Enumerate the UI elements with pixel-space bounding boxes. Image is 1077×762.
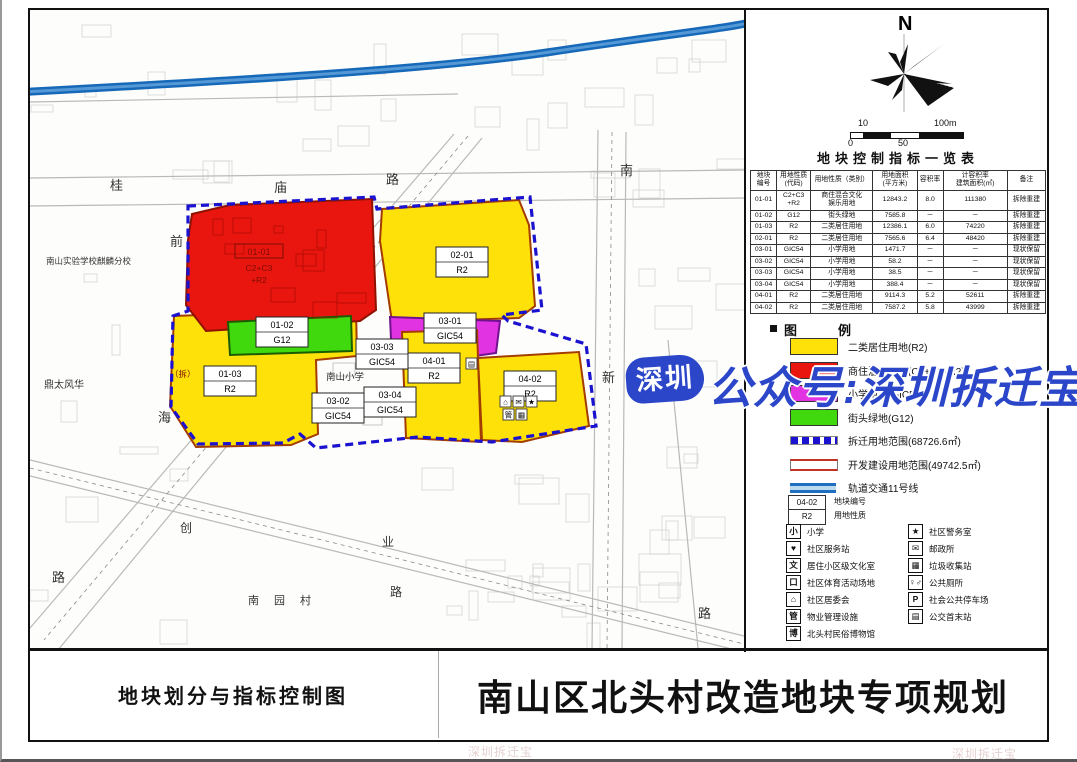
table-header: 地块 编号用地性质 (代码)用地性质（类别）用地面积 (平方米)容积率计容积率 … [751, 171, 1046, 191]
table-cell: － [917, 245, 943, 256]
table-cell: 拆除重建 [1007, 302, 1045, 313]
facility-icon: ⌂ [786, 592, 801, 607]
table-cell: 388.4 [873, 279, 917, 290]
table-row: 01-03R2二类居住用地12386.16.074220拆除重建 [751, 222, 1046, 233]
scale-tick-100m: 100m [934, 118, 957, 128]
facility-label: 邮政所 [929, 543, 955, 555]
parcel-04-01 [402, 330, 481, 442]
table-cell: G12 [777, 210, 811, 221]
table-cell: GIC54 [777, 256, 811, 267]
table-cell: 74220 [943, 222, 1007, 233]
legend-item-label: 开发建设用地范围(49742.5㎡) [848, 457, 981, 472]
table-cell: 拆除重建 [1007, 291, 1045, 302]
legend-item-label: 二类居住用地(R2) [848, 339, 927, 354]
svg-text:⌂: ⌂ [503, 398, 508, 407]
svg-text:01-01: 01-01 [247, 247, 270, 257]
parcel-label-01-03: 01-03R2 [204, 366, 256, 396]
table-cell: 拆除重建 [1007, 233, 1045, 244]
parcel-label-03-01: 03-01GIC54 [424, 313, 476, 343]
legend-bullet [770, 325, 777, 332]
parcel-label-01-02: 01-02G12 [256, 317, 308, 347]
table-cell: 01-02 [751, 210, 777, 221]
table-cell: 小学用地 [811, 268, 873, 279]
sample-parcel-code: 04-02 [789, 496, 825, 510]
facility-legend-row: ▤公交首末站 [908, 609, 1018, 625]
table-cell: 1471.7 [873, 245, 917, 256]
facility-icon: ♀♂ [908, 575, 923, 590]
north-label: N [898, 14, 912, 35]
facility-label: 社会公共停车场 [929, 594, 989, 606]
svg-text:03-01: 03-01 [438, 316, 461, 326]
table-cell: 二类居住用地 [811, 222, 873, 233]
facility-label: 社区居委会 [807, 594, 850, 606]
table-cell: 111380 [943, 190, 1007, 210]
table-cell: R2 [777, 233, 811, 244]
table-row: 03-03GIC54小学用地38.5－－现状保留 [751, 268, 1046, 279]
map-label: （拆） [170, 369, 196, 379]
legend-title: 图 例 [784, 320, 865, 339]
table-cell: 48420 [943, 233, 1007, 244]
table-row: 02-01R2二类居住用地7565.66.448420拆除重建 [751, 233, 1046, 244]
table-cell: 12843.2 [873, 190, 917, 210]
svg-text:R2: R2 [428, 371, 440, 381]
facility-legend-row: 文居住小区级文化室 [786, 558, 896, 574]
table-cell: 03-01 [751, 245, 777, 256]
project-title: 南山区北头村改造地块专项规划 [439, 651, 1047, 738]
parcel-label-03-04: 03-04GIC54 [364, 387, 416, 417]
facility-legend-row: P社会公共停车场 [908, 592, 1018, 608]
table-cell: 二类居住用地 [811, 233, 873, 244]
facility-icon: 小 [786, 524, 801, 539]
map-label: 南 [620, 163, 633, 178]
svg-text:G12: G12 [273, 335, 290, 345]
table-column-header: 备注 [1007, 171, 1045, 191]
table-cell: 二类居住用地 [811, 302, 873, 313]
table-row: 04-02R2二类居住用地7587.25.843999拆除重建 [751, 302, 1046, 313]
table-title: 地块控制指标一览表 [750, 148, 1046, 167]
table-cell: － [917, 279, 943, 290]
facility-legend-row: 管物业管理设施 [786, 609, 896, 625]
scale-tick-0: 0 [848, 138, 853, 148]
table-cell: 02-01 [751, 233, 777, 244]
facility-icon: 口 [786, 575, 801, 590]
facility-label: 社区体育活动场地 [807, 577, 875, 589]
table-cell: 7587.2 [873, 302, 917, 313]
map-label: 路 [386, 172, 399, 187]
table-row: 03-04GIC54小学用地388.4－－现状保留 [751, 279, 1046, 290]
table-cell: 现状保留 [1007, 268, 1045, 279]
table-cell: 7585.8 [873, 210, 917, 221]
table-column-header: 地块 编号 [751, 171, 777, 191]
map-label: 海 [158, 410, 171, 425]
table-cell: 9114.3 [873, 291, 917, 302]
facility-legend-row: 博北头村民俗博物馆 [786, 626, 896, 642]
panel-divider [744, 8, 746, 652]
map-label: 南山小学 [326, 371, 364, 383]
table-cell: 二类居住用地 [811, 291, 873, 302]
parcel-label-02-01: 02-01R2 [436, 247, 488, 277]
table-cell: 03-03 [751, 268, 777, 279]
table-cell: 拆除重建 [1007, 190, 1045, 210]
facility-label: 小学 [807, 526, 824, 538]
table-cell: － [943, 279, 1007, 290]
table-cell: － [917, 256, 943, 267]
facility-legend-row: ✉邮政所 [908, 541, 1018, 557]
facility-icon: ✉ [908, 541, 923, 556]
svg-text:管: 管 [505, 410, 513, 420]
table-cell: － [943, 256, 1007, 267]
watermark-faint-center: 深圳拆迁宝 [468, 743, 533, 760]
sample-parcel-label: 04-02 R2 [788, 495, 826, 525]
table-cell: GIC54 [777, 245, 811, 256]
table-row: 01-01C2+C3 +R2商住混合文化 娱乐用地12843.28.011138… [751, 190, 1046, 210]
legend-item-label: 街头绿地(G12) [848, 410, 914, 425]
table-cell: 04-02 [751, 302, 777, 313]
table-cell: C2+C3 +R2 [777, 190, 811, 210]
legend-swatch-fill [790, 409, 838, 426]
metro-line-11 [30, 22, 744, 92]
table-cell: 58.2 [873, 256, 917, 267]
map-label: 庙 [274, 180, 287, 195]
table-cell: － [943, 210, 1007, 221]
facility-legend-row: ⌂社区居委会 [786, 592, 896, 608]
svg-text:04-01: 04-01 [422, 356, 445, 366]
svg-text:GIC54: GIC54 [325, 411, 351, 421]
svg-text:★: ★ [528, 398, 535, 407]
table-cell: 5.8 [917, 302, 943, 313]
map-label: 村 [300, 593, 311, 607]
facility-legend-row: ♀♂公共厕所 [908, 575, 1018, 591]
svg-text:03-04: 03-04 [378, 390, 401, 400]
facility-icon: P [908, 592, 923, 607]
svg-text:▤: ▤ [468, 360, 475, 369]
table-cell: 03-04 [751, 279, 777, 290]
table-cell: 现状保留 [1007, 256, 1045, 267]
table-cell: 38.5 [873, 268, 917, 279]
watermark-faint-right: 深圳拆迁宝 [952, 745, 1017, 762]
table-cell: R2 [777, 222, 811, 233]
legend-label-sample: 04-02 R2 地块编号 用地性质 [788, 495, 968, 525]
svg-text:02-01: 02-01 [450, 250, 473, 260]
scale-tick-50: 50 [898, 138, 908, 148]
legend-item-label: 商住混合用地(C2+C3+R2) [848, 363, 965, 378]
sample-parcel-type: R2 [789, 510, 825, 523]
table-cell: GIC54 [777, 268, 811, 279]
facility-icon: 管 [786, 609, 801, 624]
table-cell: 03-02 [751, 256, 777, 267]
table-row: 03-01GIC54小学用地1471.7－－现状保留 [751, 245, 1046, 256]
table-cell: － [943, 268, 1007, 279]
legend-swatch-metro [790, 483, 836, 493]
facility-legend-row: ★社区警务室 [908, 524, 1018, 540]
map-label: 园 [274, 594, 285, 607]
table-cell: － [917, 210, 943, 221]
map-canvas: 02-01R201-02G1201-03R203-01GIC5403-03GIC… [30, 10, 744, 648]
map-label: 新 [602, 370, 615, 385]
svg-text:+R2: +R2 [251, 275, 267, 285]
facility-label: 居住小区级文化室 [807, 560, 875, 572]
map-label: 南 [248, 594, 259, 607]
facility-icon: 博 [786, 626, 801, 641]
table-cell: 街头绿地 [811, 210, 873, 221]
sample-note-code: 地块编号 [834, 496, 866, 507]
map-facility-icon: ▤ [466, 358, 477, 369]
scale-segment [863, 133, 891, 138]
svg-text:03-02: 03-02 [326, 396, 349, 406]
table-cell: 01-03 [751, 222, 777, 233]
facility-legend-row: 小小学 [786, 524, 896, 540]
table-cell: 6.4 [917, 233, 943, 244]
svg-text:GIC54: GIC54 [369, 357, 395, 367]
map-label: 业 [382, 535, 394, 549]
map-label: 鼎太风华 [44, 378, 84, 391]
indicator-table-block: 地块控制指标一览表 地块 编号用地性质 (代码)用地性质（类别）用地面积 (平方… [750, 148, 1046, 314]
table-cell: 12386.1 [873, 222, 917, 233]
table-cell: 现状保留 [1007, 279, 1045, 290]
table-cell: 6.0 [917, 222, 943, 233]
svg-text:▦: ▦ [518, 411, 525, 420]
svg-text:01-03: 01-03 [218, 369, 241, 379]
table-cell: R2 [777, 302, 811, 313]
legend-swatch-fill [790, 338, 838, 355]
scale-bar: 10 100m 0 50 [846, 118, 964, 146]
table-cell: 商住混合文化 娱乐用地 [811, 190, 873, 210]
table-cell: 现状保留 [1007, 245, 1045, 256]
map-label: 桂 [110, 178, 123, 193]
facility-label: 垃圾收集站 [929, 560, 972, 572]
parcel-label-03-03: 03-03GIC54 [356, 339, 408, 369]
facility-label: 物业管理设施 [807, 611, 858, 623]
facility-icon: 文 [786, 558, 801, 573]
table-column-header: 用地面积 (平方米) [873, 171, 917, 191]
facility-icon: ▦ [908, 558, 923, 573]
svg-text:03-03: 03-03 [370, 342, 393, 352]
facility-label: 社区警务室 [929, 526, 972, 538]
table-cell: 52611 [943, 291, 1007, 302]
map-facility-icon: ▦ [516, 409, 527, 420]
table-column-header: 用地性质 (代码) [777, 171, 811, 191]
table-cell: － [917, 268, 943, 279]
facility-label: 北头村民俗博物馆 [807, 628, 875, 640]
map-facility-icon: 管 [503, 409, 514, 420]
table-cell: 小学用地 [811, 256, 873, 267]
svg-text:01-02: 01-02 [270, 320, 293, 330]
table-row: 04-01R2二类居住用地9114.35.252611拆除重建 [751, 291, 1046, 302]
facility-legend-row: 口社区体育活动场地 [786, 575, 896, 591]
svg-text:GIC54: GIC54 [377, 405, 403, 415]
table-cell: 小学用地 [811, 245, 873, 256]
planning-map: 02-01R201-02G1201-03R203-01GIC5403-03GIC… [30, 10, 744, 648]
map-facility-icon: ⌂ [500, 396, 511, 407]
svg-text:04-02: 04-02 [518, 374, 541, 384]
table-column-header: 用地性质（类别） [811, 171, 873, 191]
indicator-table: 地块 编号用地性质 (代码)用地性质（类别）用地面积 (平方米)容积率计容积率 … [750, 170, 1046, 314]
metro-line-11-core [30, 22, 744, 92]
map-label: 南山实验学校麒麟分校 [46, 256, 132, 266]
table-cell: 01-01 [751, 190, 777, 210]
parcel-label-04-01: 04-01R2 [408, 353, 460, 383]
table-cell: 拆除重建 [1007, 222, 1045, 233]
map-label: 路 [698, 606, 711, 621]
sample-note-type: 用地性质 [834, 510, 866, 521]
facility-icon: ★ [908, 524, 923, 539]
svg-text:GIC54: GIC54 [437, 331, 463, 341]
legend-swatch-dashed [790, 436, 838, 445]
drawing-title: 地块划分与指标控制图 [28, 651, 438, 738]
compass-rose: N [848, 14, 960, 116]
table-cell: － [943, 245, 1007, 256]
map-label: 路 [390, 584, 402, 599]
facility-label: 社区服务站 [807, 543, 850, 555]
facility-icon: ▤ [908, 609, 923, 624]
table-row: 03-02GIC54小学用地58.2－－现状保留 [751, 256, 1046, 267]
table-cell: 7565.6 [873, 233, 917, 244]
table-column-header: 容积率 [917, 171, 943, 191]
map-label: 前 [170, 234, 183, 249]
facility-label: 公交首末站 [929, 611, 972, 623]
legend-item-label: 拆迁用地范围(68726.6㎡) [848, 433, 961, 448]
svg-text:R2: R2 [224, 384, 236, 394]
table-row: 01-02G12街头绿地7585.8－－拆除重建 [751, 210, 1046, 221]
legend-item-label: 小学用地(GIC54) [848, 386, 924, 401]
table-cell: GIC54 [777, 279, 811, 290]
table-cell: 拆除重建 [1007, 210, 1045, 221]
map-facility-icon: ✉ [513, 396, 524, 407]
table-cell: 04-01 [751, 291, 777, 302]
legend-swatch-fill [790, 385, 838, 402]
table-cell: R2 [777, 291, 811, 302]
facility-label: 公共厕所 [929, 577, 963, 589]
table-cell: 小学用地 [811, 279, 873, 290]
legend-swatch-double [790, 459, 838, 471]
parcel-label-03-02: 03-02GIC54 [312, 393, 364, 423]
legend-swatch-fill [790, 362, 838, 379]
compass-blades [870, 44, 954, 106]
legend-item-label: 轨道交通11号线 [848, 480, 918, 495]
map-label: 创 [180, 521, 192, 535]
table-cell: 8.0 [917, 190, 943, 210]
svg-text:R2: R2 [456, 265, 468, 275]
svg-text:✉: ✉ [515, 398, 521, 407]
scale-tick-10: 10 [858, 118, 868, 128]
map-facility-icon: ★ [526, 396, 537, 407]
svg-text:C2+C3: C2+C3 [246, 263, 273, 273]
table-cell: 5.2 [917, 291, 943, 302]
map-label: 路 [52, 570, 65, 585]
facility-legend-row: ♥社区服务站 [786, 541, 896, 557]
scale-segment [919, 133, 963, 138]
facility-icon: ♥ [786, 541, 801, 556]
table-column-header: 计容积率 建筑面积(㎡) [943, 171, 1007, 191]
table-cell: 43999 [943, 302, 1007, 313]
facility-legend-row: ▦垃圾收集站 [908, 558, 1018, 574]
